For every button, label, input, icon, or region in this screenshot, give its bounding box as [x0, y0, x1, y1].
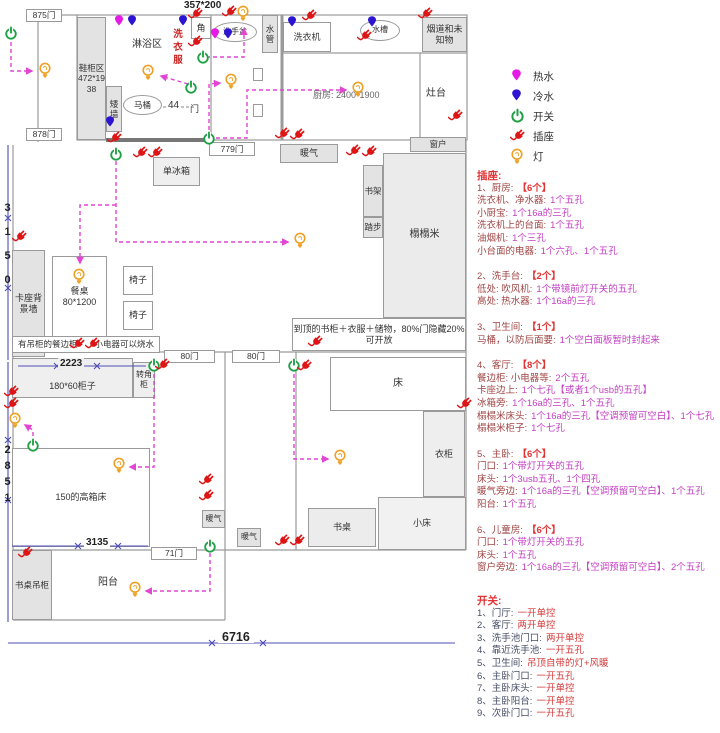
- note-text: 8、主卧阳台:: [477, 696, 532, 707]
- outlet-icon: [510, 128, 526, 144]
- note-text: 一开单控: [536, 696, 574, 707]
- note-line: 洗衣机上的台面:1个五孔: [477, 220, 720, 233]
- legend-item-outlet: 插座: [510, 126, 554, 146]
- legend-item-light: 灯: [510, 146, 554, 166]
- note-text: 9、次卧门口:: [477, 708, 532, 719]
- outlet-icon: [275, 126, 291, 142]
- shower-area-label: 淋浴区: [132, 39, 162, 50]
- switch-icon: [202, 131, 216, 145]
- note-text: 4、靠近洗手池:: [477, 645, 542, 656]
- note-text: 一开五孔: [536, 708, 574, 719]
- note-line: 床头:1个五孔: [477, 550, 720, 563]
- laundry-label: 洗 衣 服: [172, 28, 184, 67]
- note-text: 床头:: [477, 550, 499, 561]
- water-pipe: 水 管: [262, 15, 278, 53]
- note-line: 暖气旁边:1个16a的三孔【空调预留可空白】、1个五孔: [477, 486, 720, 499]
- cold-water-pin: [222, 27, 234, 40]
- switch-icon: [109, 147, 123, 161]
- wardrobe: 衣柜: [423, 411, 465, 497]
- note-text: 【1个】: [527, 322, 561, 333]
- note-line: 3、洗手池门口:两开单控: [477, 633, 720, 646]
- light-icon: [112, 457, 126, 474]
- note-text: 1个带镜前灯开关的五孔: [536, 284, 636, 295]
- note-line: 4、客厅:【8个】: [477, 360, 720, 373]
- note-text: 餐边柜: 小电器等:: [477, 373, 551, 384]
- light-icon: [141, 64, 155, 81]
- outlet-icon: [290, 127, 306, 143]
- note-text: 榻榻米床头:: [477, 411, 527, 422]
- note-text: 1个五孔: [550, 220, 584, 231]
- note-text: 1个16a的三孔【空调预留可空白】、2个五孔: [522, 562, 705, 573]
- outlet-icon: [346, 143, 362, 159]
- legend-label: 热水: [533, 69, 554, 84]
- stove-label: 灶台: [426, 88, 446, 99]
- note-line: 洗衣机、净水器:1个五孔: [477, 195, 720, 208]
- note-line: 小厨宝:1个16a的三孔: [477, 208, 720, 221]
- note-line: 榻榻米柜子:1个七孔: [477, 423, 720, 436]
- steps-strip: 踏步: [363, 217, 383, 238]
- note-text: 两开单控: [546, 633, 584, 644]
- balcony-label: 阳台: [98, 577, 118, 588]
- note-line: 9、次卧门口:一开五孔: [477, 708, 720, 721]
- shoe-cabinet-area: 鞋柜区 472*19 38: [77, 17, 106, 140]
- note-text: 吊顶自带的灯+风暖: [527, 658, 609, 669]
- light-icon: [293, 232, 307, 249]
- note-text: 1个五孔: [503, 499, 537, 510]
- outlet-icon: [85, 336, 101, 352]
- notes-section-title: 插座:: [477, 170, 502, 182]
- note-text: 2个五孔: [555, 373, 589, 384]
- note-text: 1个三孔: [512, 233, 546, 244]
- switch-icon: [26, 438, 40, 452]
- hot-water-pin: [209, 27, 221, 40]
- sideboard-label-left: 有吊柜的餐边柜: [18, 339, 78, 350]
- note-line: 油烟机:1个三孔: [477, 233, 720, 246]
- note-line: 4、靠近洗手池:一开五孔: [477, 645, 720, 658]
- outlet-icon: [12, 229, 28, 245]
- legend-item-switch: 开关: [510, 106, 554, 126]
- chair-2: 椅子: [123, 301, 153, 330]
- outlet-icon: [133, 145, 149, 161]
- note-text: 5、主卧:: [477, 449, 513, 460]
- desk: 书桌: [308, 508, 376, 547]
- note-text: 3、卫生间:: [477, 322, 523, 333]
- note-line: 3、卫生间:【1个】: [477, 322, 720, 335]
- cold-water-pin: [510, 88, 526, 104]
- note-text: 1、厨房:: [477, 183, 513, 194]
- door-71: 71门: [151, 547, 197, 560]
- sideboard-label-right: 小电器可以烧水: [94, 339, 154, 350]
- switch-icon: [196, 50, 210, 64]
- hot-water-pin: [510, 68, 526, 84]
- tatami-area: 榻榻米: [383, 153, 466, 318]
- bookshelf-strip: 书架: [363, 165, 383, 217]
- note-text: 门口:: [477, 461, 499, 472]
- note-text: 1个带灯开关的五孔: [503, 537, 584, 548]
- outlet-icon: [357, 28, 373, 44]
- note-line: 1、厨房:【6个】: [477, 183, 720, 196]
- light-icon: [333, 449, 347, 466]
- outlet-icon: [107, 130, 123, 146]
- note-text: 1个带灯开关的五孔: [503, 461, 584, 472]
- note-text: 1个七孔: [531, 423, 565, 434]
- note-text: 榻榻米柜子:: [477, 423, 527, 434]
- note-text: 冰箱旁:: [477, 398, 508, 409]
- note-text: 阳台:: [477, 499, 499, 510]
- note-text: 门口:: [477, 537, 499, 548]
- note-line: 2、洗手台:【2个】: [477, 271, 720, 284]
- light-icon: [224, 73, 238, 90]
- note-text: 1、门厅:: [477, 608, 513, 619]
- note-text: 6、主卧门口:: [477, 671, 532, 682]
- light-icon: [38, 62, 52, 79]
- note-text: 1个16a的三孔: [512, 208, 571, 219]
- note-text: 1个16a的三孔【空调预留可空白】、1个七孔: [531, 411, 714, 422]
- note-line: 6、儿童房:【6个】: [477, 525, 720, 538]
- note-text: 【6个】: [517, 183, 551, 194]
- note-line: 窗户旁边:1个16a的三孔【空调预留可空白】、2个五孔: [477, 562, 720, 575]
- outlet-icon: [297, 358, 313, 374]
- door-80-a: 80门: [164, 350, 215, 363]
- legend: 热水 冷水 开关 插座 灯: [510, 66, 554, 166]
- door-notch-2: [253, 104, 263, 117]
- dim-6716: 6716: [218, 632, 254, 643]
- door-875: 875门: [26, 9, 62, 22]
- note-text: 【6个】: [517, 449, 551, 460]
- note-line: 高处: 热水器:1个16a的三孔: [477, 296, 720, 309]
- kitchen-dim-label: 厨房: 2400*1900: [313, 90, 380, 101]
- high-box-bed: 150的高箱床: [12, 448, 150, 547]
- cold-water-pin: [286, 15, 298, 28]
- legend-label: 开关: [533, 109, 554, 124]
- light-icon: [128, 581, 142, 598]
- note-line: 马桶，以防后面要:1个空白面板暂时封起来: [477, 335, 720, 348]
- note-line: 卡座边上:1个七孔【或者1个usb的五孔】: [477, 385, 720, 398]
- note-text: 暖气旁边:: [477, 486, 518, 497]
- note-line: 门口:1个带灯开关的五孔: [477, 537, 720, 550]
- note-line: 7、主卧床头:一开单控: [477, 683, 720, 696]
- note-line: 小台面的电器:1个六孔、1个五孔: [477, 246, 720, 259]
- door-notch-1: [253, 68, 263, 81]
- outlet-icon: [188, 6, 204, 22]
- note-text: 1个七孔【或者1个usb的五孔】: [522, 385, 652, 396]
- note-line: 2、客厅:两开单控: [477, 620, 720, 633]
- note-line: 5、卫生间:吊顶自带的灯+风暖: [477, 658, 720, 671]
- outlet-icon: [199, 488, 215, 504]
- cold-water-pin: [366, 15, 378, 28]
- note-text: 小厨宝:: [477, 208, 508, 219]
- note-text: 卡座边上:: [477, 385, 518, 396]
- switch-icon: [203, 539, 217, 553]
- note-text: 1个3usb五孔、1个四孔: [503, 474, 601, 485]
- door-80-b: 80门: [232, 350, 280, 363]
- note-text: 3、洗手池门口:: [477, 633, 542, 644]
- outlet-icon: [457, 396, 473, 412]
- light-icon: [510, 148, 526, 164]
- window-box: 窗户: [410, 137, 466, 152]
- outlet-icon: [362, 144, 378, 160]
- note-line: 6、主卧门口:一开五孔: [477, 671, 720, 684]
- note-text: 1个16a的三孔、1个五孔: [512, 398, 614, 409]
- light-icon: [72, 268, 86, 285]
- outlet-icon: [290, 533, 306, 549]
- dim-2223: 2223: [58, 358, 84, 369]
- note-text: 1个六孔、1个五孔: [541, 246, 618, 257]
- note-text: 6、儿童房:: [477, 525, 523, 536]
- note-text: 7、主卧床头:: [477, 683, 532, 694]
- notes-panel: 插座:1、厨房:【6个】洗衣机、净水器:1个五孔小厨宝:1个16a的三孔洗衣机上…: [477, 170, 720, 721]
- cold-water-pin: [104, 115, 116, 128]
- note-text: 1个空白面板暂时封起来: [560, 335, 660, 346]
- door-char-label: 门: [190, 104, 199, 115]
- note-text: 两开单控: [517, 620, 555, 631]
- note-text: 【2个】: [527, 271, 561, 282]
- door-878: 878门: [26, 128, 62, 141]
- note-text: 马桶，以防后面要:: [477, 335, 556, 346]
- note-line: 床头:1个3usb五孔、1个四孔: [477, 474, 720, 487]
- dim-3135: 3135: [84, 537, 110, 548]
- note-text: 小台面的电器:: [477, 246, 537, 257]
- note-line: 8、主卧阳台:一开单控: [477, 696, 720, 709]
- chair-1: 椅子: [123, 266, 153, 295]
- legend-item-cold-water: 冷水: [510, 86, 554, 106]
- cold-water-pin: [126, 14, 138, 27]
- note-text: 油烟机:: [477, 233, 508, 244]
- note-text: 高处: 热水器:: [477, 296, 532, 307]
- note-line: 阳台:1个五孔: [477, 499, 720, 512]
- notes-section: 开关:1、门厅:一开单控2、客厅:两开单控3、洗手池门口:两开单控4、靠近洗手池…: [477, 595, 720, 721]
- switch-icon: [4, 26, 18, 40]
- outlet-icon: [148, 145, 164, 161]
- dim-44: 44: [168, 100, 179, 111]
- legend-item-hot-water: 热水: [510, 66, 554, 86]
- radiator-kids: 暖气: [237, 528, 261, 547]
- note-line: 5、主卧:【6个】: [477, 449, 720, 462]
- notes-section-title: 开关:: [477, 595, 502, 607]
- note-line: 1、门厅:一开单控: [477, 608, 720, 621]
- outlet-icon: [188, 34, 204, 50]
- light-icon: [351, 81, 365, 98]
- note-text: 1个16a的三孔: [536, 296, 595, 307]
- note-text: 2、洗手台:: [477, 271, 523, 282]
- small-bed: 小床: [378, 497, 466, 550]
- note-text: 窗户旁边:: [477, 562, 518, 573]
- note-text: 4、客厅:: [477, 360, 513, 371]
- switch-icon: [184, 80, 198, 94]
- dim-2851: 2 8 5 1: [2, 442, 13, 506]
- legend-label: 插座: [533, 129, 554, 144]
- note-text: 洗衣机上的台面:: [477, 220, 546, 231]
- outlet-icon: [199, 472, 215, 488]
- switch-icon: [510, 108, 526, 124]
- outlet-icon: [418, 6, 434, 22]
- note-text: 一开单控: [536, 683, 574, 694]
- outlet-icon: [18, 545, 34, 561]
- note-text: 一开单控: [517, 608, 555, 619]
- legend-label: 冷水: [533, 89, 554, 104]
- light-icon: [8, 412, 22, 429]
- outlet-icon: [70, 336, 86, 352]
- note-text: 一开五孔: [536, 671, 574, 682]
- note-text: 5、卫生间:: [477, 658, 523, 669]
- radiator-kitchen: 暖气: [280, 144, 338, 163]
- note-text: 床头:: [477, 474, 499, 485]
- legend-label: 灯: [533, 149, 544, 164]
- flue-box: 烟道和未 知物: [422, 17, 467, 52]
- outlet-icon: [4, 396, 20, 412]
- note-text: 2、客厅:: [477, 620, 513, 631]
- hot-water-pin: [113, 14, 125, 27]
- notes-section: 插座:1、厨房:【6个】洗衣机、净水器:1个五孔小厨宝:1个16a的三孔洗衣机上…: [477, 170, 720, 575]
- note-text: 低处: 吹风机:: [477, 284, 532, 295]
- outlet-icon: [155, 357, 171, 373]
- note-text: 洗衣机、净水器:: [477, 195, 546, 206]
- note-line: 榻榻米床头:1个16a的三孔【空调预留可空白】、1个七孔: [477, 411, 720, 424]
- radiator-master: 暖气: [202, 510, 225, 528]
- note-text: 【6个】: [527, 525, 561, 536]
- floorplan-page: 鞋柜区 472*19 38 矮 墙 角 洗手盆 水 管 洗衣机 水槽 烟道和未 …: [0, 0, 720, 733]
- bed: 床: [330, 357, 466, 411]
- note-line: 冰箱旁:1个16a的三孔、1个五孔: [477, 398, 720, 411]
- note-line: 餐边柜: 小电器等:2个五孔: [477, 373, 720, 386]
- single-fridge: 单冰箱: [153, 157, 200, 186]
- note-text: 1个五孔: [550, 195, 584, 206]
- note-text: 【8个】: [517, 360, 551, 371]
- outlet-icon: [302, 8, 318, 24]
- note-text: 一开五孔: [546, 645, 584, 656]
- outlet-icon: [448, 108, 464, 124]
- note-line: 门口:1个带灯开关的五孔: [477, 461, 720, 474]
- outlet-icon: [308, 334, 324, 350]
- light-icon: [236, 5, 250, 22]
- note-text: 1个五孔: [503, 550, 537, 561]
- outlet-icon: [275, 533, 291, 549]
- note-line: 低处: 吹风机:1个带镜前灯开关的五孔: [477, 284, 720, 297]
- toilet: 马桶: [123, 95, 162, 115]
- note-text: 1个16a的三孔【空调预留可空白】、1个五孔: [522, 486, 705, 497]
